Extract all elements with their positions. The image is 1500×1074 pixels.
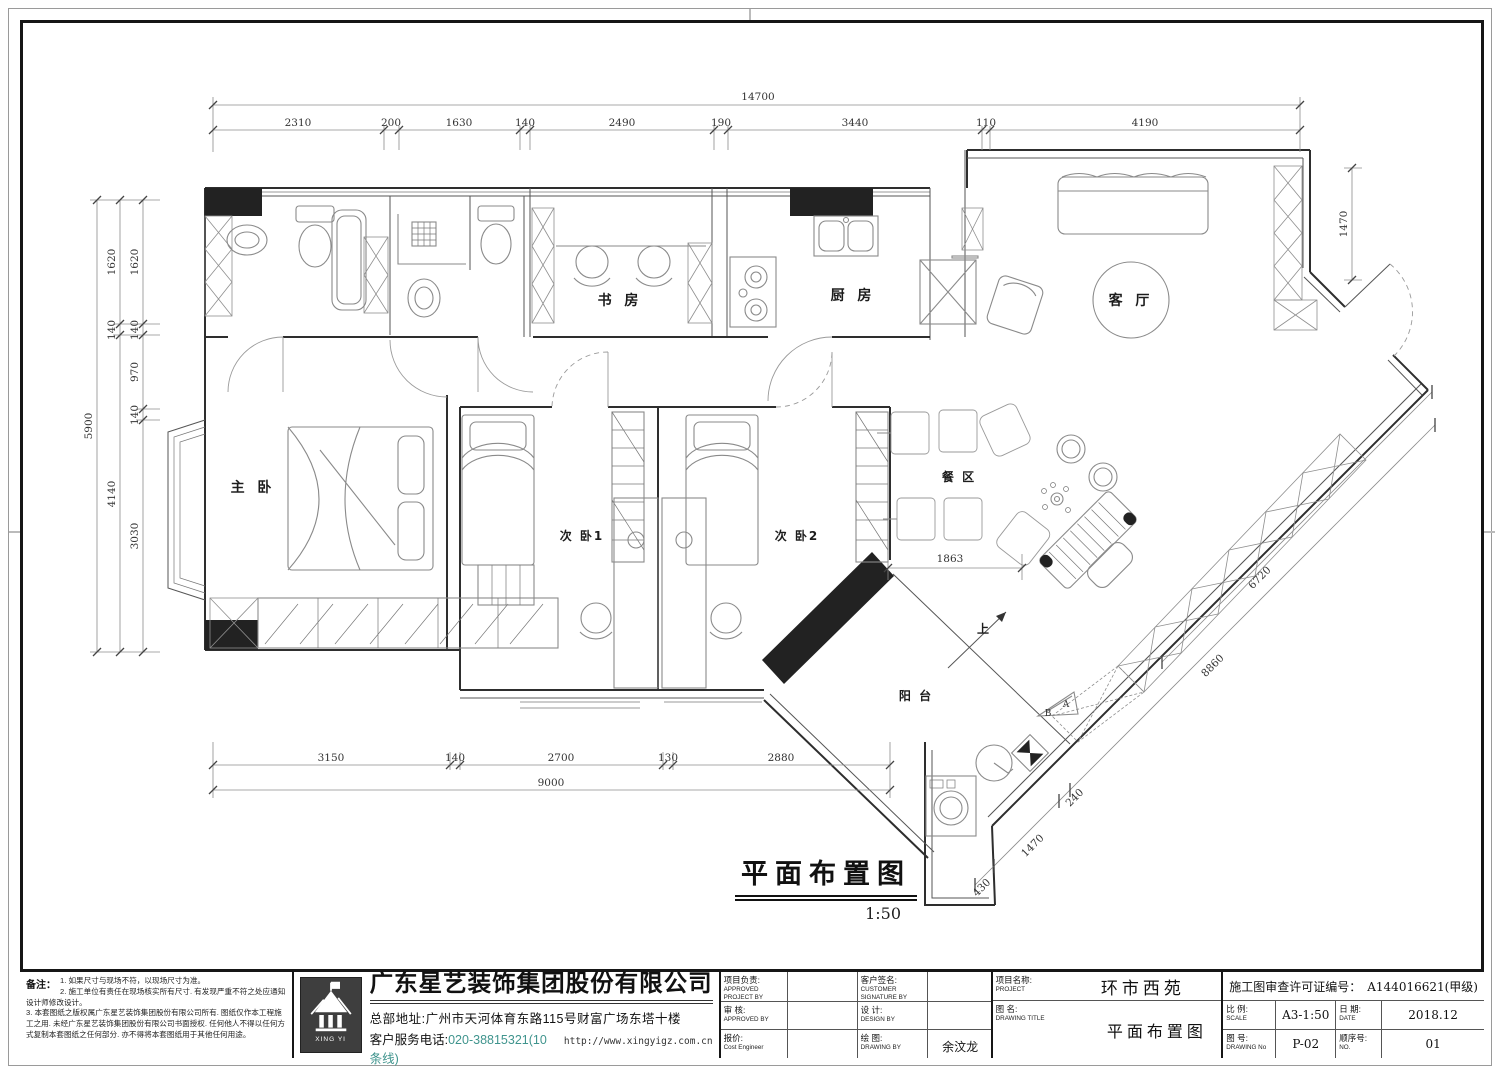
living-furniture [985,174,1208,339]
svg-text:240: 240 [1064,787,1087,810]
double-bed-icon [288,427,433,570]
pillow-icon [398,436,424,494]
svg-text:2310: 2310 [285,117,312,129]
kitchen-fixtures [730,216,978,327]
chair-icon [891,412,929,454]
toilet-icon [478,206,514,221]
study-furniture [556,246,706,286]
svg-text:130: 130 [658,752,678,764]
svg-text:140: 140 [129,320,141,340]
phone-label: 客户服务电话: [370,1033,448,1047]
scale-label: 比 例:SCALE [1223,1001,1275,1029]
title-block: 备注： 1. 如果尺寸与现场不符，以现场尺寸为准。 2. 施工单位有责任在现场核… [20,969,1484,1058]
svg-text:140: 140 [129,405,141,425]
chair-icon [978,402,1033,459]
dining-furniture [877,402,1138,592]
bay-window [168,420,205,600]
desk-icon [614,498,658,688]
structural-columns [205,188,894,684]
desk-icon [662,498,706,688]
permit-number: A144016621(甲级) [1367,978,1478,995]
stairs-up-label: 上 [977,621,991,636]
entry-door-swing-icon [1390,264,1413,356]
field-label: 报价:Cost Engineer [721,1029,787,1058]
field-label: 绘 图:DRAWING BY [857,1029,927,1058]
drawing-no-label: 图 号:DRAWING No [1223,1030,1275,1058]
pillow-icon [398,502,424,560]
notes-panel: 备注： 1. 如果尺寸与现场不符，以现场尺寸为准。 2. 施工单位有责任在现场核… [20,972,292,1058]
signature-cell [787,972,857,1001]
svg-text:1620: 1620 [106,249,118,276]
signature-cell [927,972,993,1001]
svg-text:2700: 2700 [548,752,575,764]
signature-cell [927,1001,993,1030]
drawing-title-value: 平面布置图 [1093,1001,1222,1058]
logo-text: XING YI [315,1036,346,1043]
project-label: 项目名称:PROJECT [993,972,1065,1000]
svg-text:4140: 4140 [106,481,118,508]
svg-text:1620: 1620 [129,249,141,276]
decor-icon [1051,493,1063,505]
chair-icon [939,410,977,452]
svg-text:1630: 1630 [446,117,473,129]
seq-no-label: 顺序号:NO. [1335,1030,1381,1058]
drawing-title: 平面布置图 1:50 [735,852,917,923]
xingyi-logo-icon [304,978,358,1034]
project-name: 环市西苑 [1065,972,1222,1000]
room-labels: 书 房 厨 房 客 厅 主 卧 次 卧1 次 卧2 餐 区 阳 台 上 [231,287,1154,703]
room-label-bedroom1: 次 卧1 [560,528,605,543]
dim-left-total: 5900 [83,413,95,440]
scale-value: A3-1:50 [1275,1001,1335,1029]
date-value: 2018.12 [1381,1001,1484,1029]
permit-panel: 施工图审查许可证编号： A144016621(甲级) 比 例:SCALE A3-… [1221,972,1484,1058]
room-label-balcony: 阳 台 [899,688,933,703]
floor-drain-icon [1012,735,1049,772]
svg-text:200: 200 [381,117,401,129]
svg-text:3150: 3150 [318,752,345,764]
dimensions: 14700 2310 200 1630 140 2490 190 3440 11… [83,91,1435,899]
company-name: 广东星艺装饰集团股份有限公司 [370,964,713,1004]
company-url: http://www.xingyigz.com.cn [564,1036,713,1047]
note-item: 2. 施工单位有责任在现场核实所有尺寸. 有发现严重不符之处应通知设计师修改设计… [26,987,286,1009]
permit-label: 施工图审查许可证编号： [1229,978,1361,995]
stairs-up-arrow [948,612,1006,668]
room-label-master: 主 卧 [231,479,276,496]
sink-icon [227,225,267,255]
svg-text:2490: 2490 [609,117,636,129]
signature-cell [787,1001,857,1030]
dim-top-total: 14700 [741,91,774,103]
dim-bottom-total: 9000 [538,777,565,789]
signature-cell [787,1029,857,1058]
field-label: 客户签名:CUSTOMER SIGNATURE BY [857,972,927,1001]
chair-icon [897,498,935,540]
stool-icon [1057,435,1085,463]
room-label-bedroom2: 次 卧2 [775,528,820,543]
chair-icon [638,246,670,278]
tray-icon [1084,539,1136,591]
svg-text:430: 430 [971,877,994,900]
drawn-by-value: 余汶龙 [927,1029,993,1058]
field-label: 审 核:APPROVED BY [721,1001,787,1030]
date-label: 日 期:DATE [1335,1001,1381,1029]
room-label-living: 客 厅 [1108,292,1154,309]
project-panel: 项目名称:PROJECT 环市西苑 图 名:DRAWING TITLE 平面布置… [991,972,1222,1058]
svg-text:4190: 4190 [1132,117,1159,129]
chair-icon [944,498,982,540]
wardrobe-icon [856,412,888,562]
dim-right: 1470 [1338,211,1350,238]
company-logo: XING YI [300,977,362,1053]
section-marker: A B [1038,692,1078,719]
drawing-sheet: A B 书 房 厨 房 客 厅 主 卧 次 卧1 次 卧2 餐 区 阳 台 上 [0,0,1500,1074]
lamp-icon [676,532,692,548]
single-bed-icon [462,415,534,565]
svg-text:140: 140 [515,117,535,129]
svg-text:190: 190 [711,117,731,129]
field-label: 设 计:DESIGN BY [857,1001,927,1030]
chair-icon [711,603,741,633]
permit-row: 施工图审查许可证编号： A144016621(甲级) [1223,972,1484,1000]
svg-text:B: B [1045,709,1052,719]
door-swings [228,337,832,407]
svg-text:3030: 3030 [129,523,141,550]
svg-text:110: 110 [976,117,996,129]
svg-text:140: 140 [445,752,465,764]
chair-icon [576,246,608,278]
svg-text:A: A [1062,700,1070,710]
toilet-icon [296,206,334,222]
drawing-title-scale: 1:50 [735,904,917,923]
svg-text:2880: 2880 [768,752,795,764]
signature-grid: 项目负责:APPROVED PROJECT BY 客户签名:CUSTOMER S… [719,972,991,1058]
note-item: 3. 本套图纸之版权属广东星艺装饰集团股份有限公司所有. 图纸仅作本工程施工之用… [26,1008,286,1040]
single-bed-icon [686,415,758,565]
stove-icon [730,257,776,327]
svg-text:3440: 3440 [842,117,869,129]
chair-icon [581,603,611,633]
pillow-icon [470,422,526,450]
svg-text:970: 970 [129,362,141,382]
windows [168,420,762,708]
note-item: 1. 如果尺寸与现场不符，以现场尺寸为准。 [26,976,286,987]
field-label: 项目负责:APPROVED PROJECT BY [721,972,787,1001]
company-panel: XING YI 广东星艺装饰集团股份有限公司 总部地址:广州市天河体育东路115… [292,972,719,1058]
drawing-title-label: 图 名:DRAWING TITLE [993,1001,1093,1058]
pillow-icon [694,422,750,450]
dim-dining: 1863 [937,553,964,565]
walls [205,150,1428,905]
notes-label: 备注： [26,976,56,991]
drawing-title-text: 平面布置图 [735,852,917,901]
room-label-kitchen: 厨 房 [831,287,876,304]
company-address: 总部地址:广州市天河体育东路115号财富广场东塔十楼 [370,1008,713,1027]
washing-machine-icon [926,776,976,836]
seq-no-value: 01 [1381,1030,1484,1058]
bathroom-fixtures [227,206,514,317]
stool-icon [1089,463,1117,491]
svg-text:140: 140 [106,320,118,340]
drawing-no-value: P-02 [1275,1030,1335,1058]
floor-plan-drawing: A B 书 房 厨 房 客 厅 主 卧 次 卧1 次 卧2 餐 区 阳 台 上 [0,0,1500,966]
room-label-study: 书 房 [598,292,643,309]
sink-icon [408,279,440,317]
room-label-dining: 餐 区 [942,469,976,484]
sofa-icon [1058,177,1208,234]
